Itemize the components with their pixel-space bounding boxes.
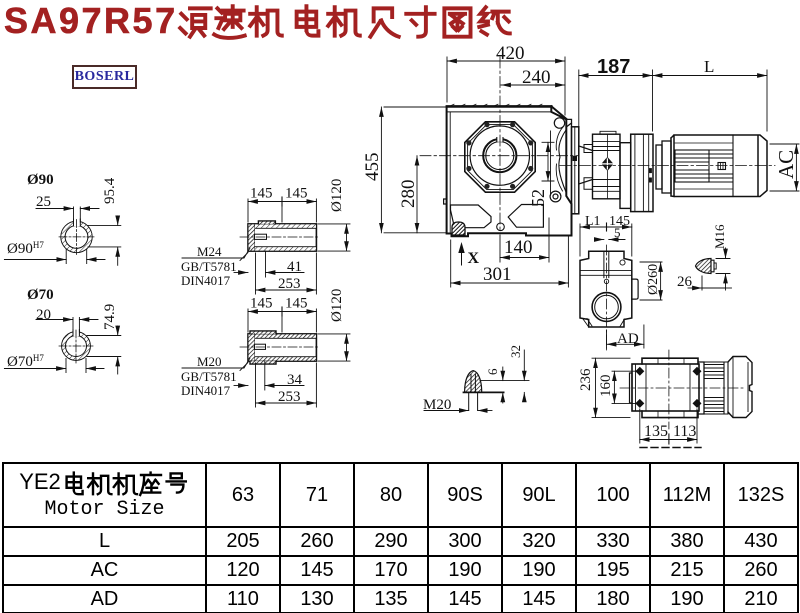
svg-text:GB/T5781: GB/T5781 xyxy=(181,259,237,274)
svg-text:455: 455 xyxy=(362,153,383,182)
svg-text:113: 113 xyxy=(673,423,696,440)
svg-text:280: 280 xyxy=(398,180,419,209)
svg-text:X: X xyxy=(468,250,480,267)
svg-text:140: 140 xyxy=(504,237,533,258)
svg-text:M16: M16 xyxy=(712,224,727,249)
svg-text:20: 20 xyxy=(36,307,51,323)
svg-text:32: 32 xyxy=(508,345,523,358)
svg-text:L: L xyxy=(704,57,714,76)
svg-text:236: 236 xyxy=(578,368,594,391)
svg-text:AC: AC xyxy=(774,150,798,179)
svg-text:95.4: 95.4 xyxy=(102,177,118,204)
svg-text:74.9: 74.9 xyxy=(102,304,118,330)
svg-text:301: 301 xyxy=(483,264,512,285)
svg-text:135: 135 xyxy=(644,423,668,440)
svg-text:Ø120: Ø120 xyxy=(329,179,345,212)
svg-text:DIN4017: DIN4017 xyxy=(181,273,231,288)
svg-text:145: 145 xyxy=(250,296,273,312)
svg-text:DIN4017: DIN4017 xyxy=(181,383,231,398)
svg-text:GB/T5781: GB/T5781 xyxy=(181,369,237,384)
svg-text:145: 145 xyxy=(250,186,273,202)
svg-text:M24: M24 xyxy=(197,244,222,259)
svg-text:5: 5 xyxy=(614,225,621,240)
svg-text:Ø90H7: Ø90H7 xyxy=(7,240,44,257)
svg-text:52: 52 xyxy=(528,189,548,207)
svg-text:25: 25 xyxy=(36,194,51,210)
svg-text:Ø90: Ø90 xyxy=(27,172,54,188)
svg-text:160: 160 xyxy=(598,375,614,398)
svg-text:Ø70H7: Ø70H7 xyxy=(7,353,44,370)
svg-text:Ø70: Ø70 xyxy=(27,287,54,303)
svg-text:Ø120: Ø120 xyxy=(329,289,345,322)
svg-text:6: 6 xyxy=(485,368,500,375)
svg-text:Ø260: Ø260 xyxy=(646,264,661,295)
svg-text:M20: M20 xyxy=(197,354,222,369)
svg-text:145: 145 xyxy=(285,296,308,312)
svg-text:145: 145 xyxy=(285,186,308,202)
svg-text:187: 187 xyxy=(597,56,630,78)
